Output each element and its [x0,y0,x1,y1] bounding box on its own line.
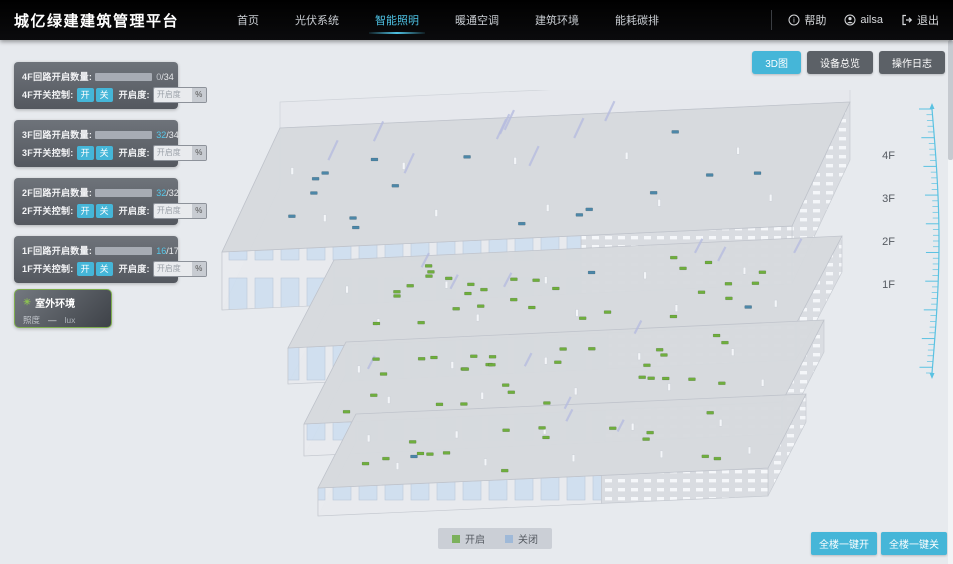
light-marker [467,283,474,286]
nav-item-hvac[interactable]: 暖通空调 [455,0,499,40]
light-marker [445,277,452,280]
page-scrollbar[interactable] [948,40,953,564]
svg-text:i: i [794,16,796,25]
floor-label-1f[interactable]: 1F [882,279,895,322]
light-marker [453,307,460,310]
light-marker [425,264,432,267]
light-marker [425,275,432,278]
light-marker [662,377,669,380]
light-marker [759,271,766,274]
light-marker [680,267,687,270]
operation-log-button[interactable]: 操作日志 [879,51,945,74]
light-marker [639,376,646,379]
light-marker [382,457,389,460]
floor-panel-4f: 4F回路开启数量:0/344F开关控制:开关开启度:% [14,62,178,109]
sun-rays-icon: ☀ [23,298,31,307]
circuit-count-value: 0/34 [156,72,174,82]
switch-on-button[interactable]: 开 [77,262,94,276]
light-marker [443,451,450,454]
light-marker [533,279,540,282]
switch-off-button[interactable]: 关 [96,204,113,218]
light-marker [725,282,732,285]
light-marker [501,469,508,472]
opacity-input[interactable] [154,204,192,218]
view-switcher: 3D图 设备总览 操作日志 [752,51,945,74]
light-marker [510,298,517,301]
light-marker [407,284,414,287]
switch-on-button[interactable]: 开 [77,146,94,160]
circuit-progress-bar [95,131,152,139]
light-marker [430,356,437,359]
light-marker [394,294,401,297]
percent-button[interactable]: % [192,88,206,102]
light-marker [518,222,525,225]
illuminance-unit: lux [65,315,76,325]
scrollbar-thumb[interactable] [948,40,953,160]
light-marker [288,215,295,218]
light-marker [660,353,667,356]
outdoor-environment-panel: ☀ 室外环境 照度 — lux [14,289,112,328]
outdoor-title: 室外环境 [35,295,75,310]
light-marker [643,364,650,367]
legend-item-on: 开启 [452,531,485,546]
light-marker [672,130,679,133]
user-avatar-icon [844,14,856,26]
help-button[interactable]: i 帮助 [788,12,826,28]
illuminance-label: 照度 [23,314,40,326]
circuit-count-label: 1F回路开启数量: [22,244,92,257]
light-marker [609,427,616,430]
light-marker [745,306,752,309]
light-marker [752,282,759,285]
light-marker [721,341,728,344]
opacity-input[interactable] [154,262,192,276]
page-title: 城亿绿建建筑管理平台 [14,10,179,31]
circuit-count-label: 3F回路开启数量: [22,128,92,141]
light-marker [560,348,567,351]
building-floor-1f[interactable] [318,394,806,516]
switch-on-button[interactable]: 开 [77,204,94,218]
floor-label-3f[interactable]: 3F [882,193,895,236]
circuit-count-value: 32/34 [156,130,179,140]
light-marker [554,361,561,364]
light-marker [322,172,329,175]
switch-off-button[interactable]: 关 [96,88,113,102]
floor-panel-2f: 2F回路开启数量:32/322F开关控制:开关开启度:% [14,178,178,225]
light-marker [586,208,593,211]
building-3d-view[interactable] [200,90,890,535]
light-marker [650,191,657,194]
circuit-count-value: 16/17 [156,246,179,256]
light-marker [343,410,350,413]
nav-item-pv-system[interactable]: 光伏系统 [295,0,339,40]
switch-off-button[interactable]: 关 [96,146,113,160]
floor-panel-3f: 3F回路开启数量:32/343F开关控制:开关开启度:% [14,120,178,167]
light-marker [725,297,732,300]
user-menu[interactable]: ailsa [844,14,883,26]
light-marker [508,391,515,394]
light-marker [604,311,611,314]
light-marker [705,261,712,264]
switch-control-label: 2F开关控制: [22,204,74,217]
light-marker [393,290,400,293]
light-marker [477,305,484,308]
switch-control-label: 4F开关控制: [22,88,74,101]
light-marker [418,357,425,360]
light-marker [539,426,546,429]
light-marker [418,321,425,324]
floor-label-2f[interactable]: 2F [882,236,895,279]
opacity-label: 开启度: [119,204,150,217]
light-marker [392,184,399,187]
light-marker [707,411,714,414]
circuit-progress-bar [95,189,152,197]
opacity-label: 开启度: [119,88,150,101]
light-marker [502,384,509,387]
circuit-count-label: 4F回路开启数量: [22,70,92,83]
light-marker [543,402,550,405]
light-marker [542,436,549,439]
logout-button[interactable]: 退出 [901,12,939,28]
view-3d-button[interactable]: 3D图 [752,51,801,74]
top-bar: 城亿绿建建筑管理平台 首页 光伏系统 智能照明 暖通空调 建筑环境 能耗碳排 i… [0,0,953,40]
light-marker [410,455,417,458]
floor-label-4f[interactable]: 4F [882,150,895,193]
light-marker [427,270,434,273]
percent-button[interactable]: % [192,204,206,218]
light-marker [510,278,517,281]
floor-ruler-slider[interactable] [902,102,944,380]
light-marker [436,403,443,406]
light-marker [426,453,433,456]
all-on-button[interactable]: 全楼一键开 [811,532,877,555]
light-marker [373,322,380,325]
light-marker [670,315,677,318]
light-marker [656,348,663,351]
nav-item-home[interactable]: 首页 [237,0,259,40]
light-marker [754,172,761,175]
floor-panel-1f: 1F回路开启数量:16/171F开关控制:开关开启度:% [14,236,178,283]
percent-button[interactable]: % [192,146,206,160]
circuit-count-label: 2F回路开启数量: [22,186,92,199]
logout-icon [901,14,913,26]
light-marker [688,378,695,381]
percent-button[interactable]: % [192,262,206,276]
username: ailsa [860,14,883,26]
light-marker [370,394,377,397]
light-marker [409,440,416,443]
circuit-progress-bar [95,73,152,81]
light-marker [647,431,654,434]
legend-off-swatch [505,535,513,543]
header-utilities: i 帮助 ailsa 退出 [771,10,939,30]
light-marker [371,158,378,161]
circuit-count-value: 32/32 [156,188,179,198]
light-marker [464,292,471,295]
light-marker [489,355,496,358]
light-marker [648,377,655,380]
light-marker [480,288,487,291]
switch-off-button[interactable]: 关 [96,262,113,276]
opacity-label: 开启度: [119,146,150,159]
illuminance-value: — [48,315,57,325]
light-marker [670,256,677,259]
light-marker [579,317,586,320]
light-marker [698,291,705,294]
light-marker [488,363,495,366]
opacity-input-group: % [153,203,207,219]
switch-control-label: 3F开关控制: [22,146,74,159]
opacity-input[interactable] [154,88,192,102]
light-marker [713,334,720,337]
light-marker [362,462,369,465]
light-marker [576,213,583,216]
light-marker [464,155,471,158]
opacity-label: 开启度: [119,262,150,275]
light-marker [373,358,380,361]
floor-axis-labels: 4F 3F 2F 1F [882,150,895,322]
opacity-input-group: % [153,145,207,161]
nav-item-building-env[interactable]: 建筑环境 [535,0,579,40]
switch-on-button[interactable]: 开 [77,88,94,102]
switch-control-label: 1F开关控制: [22,262,74,275]
light-marker [503,429,510,432]
legend-on-swatch [452,535,460,543]
light-marker [310,192,317,195]
light-marker [312,177,319,180]
light-marker [552,287,559,290]
whole-building-controls: 全楼一键开 全楼一键关 [811,532,947,555]
opacity-input-group: % [153,261,207,277]
light-marker [528,306,535,309]
status-legend: 开启 关闭 [438,528,552,549]
light-marker [460,403,467,406]
light-marker [417,452,424,455]
opacity-input[interactable] [154,146,192,160]
light-marker [702,455,709,458]
device-overview-button[interactable]: 设备总览 [807,51,873,74]
opacity-input-group: % [153,87,207,103]
light-marker [380,373,387,376]
light-marker [718,382,725,385]
light-marker [588,347,595,350]
light-marker [714,457,721,460]
light-marker [462,368,469,371]
legend-item-off: 关闭 [505,531,538,546]
all-off-button[interactable]: 全楼一键关 [881,532,947,555]
circuit-progress-bar [95,247,152,255]
nav-item-energy-carbon[interactable]: 能耗碳排 [615,0,659,40]
main-nav: 首页 光伏系统 智能照明 暖通空调 建筑环境 能耗碳排 [237,0,659,40]
light-marker [352,226,359,229]
help-icon: i [788,14,800,26]
light-marker [350,217,357,220]
light-marker [470,355,477,358]
nav-item-smart-lighting[interactable]: 智能照明 [375,0,419,40]
light-marker [588,271,595,274]
light-marker [643,438,650,441]
light-marker [706,174,713,177]
